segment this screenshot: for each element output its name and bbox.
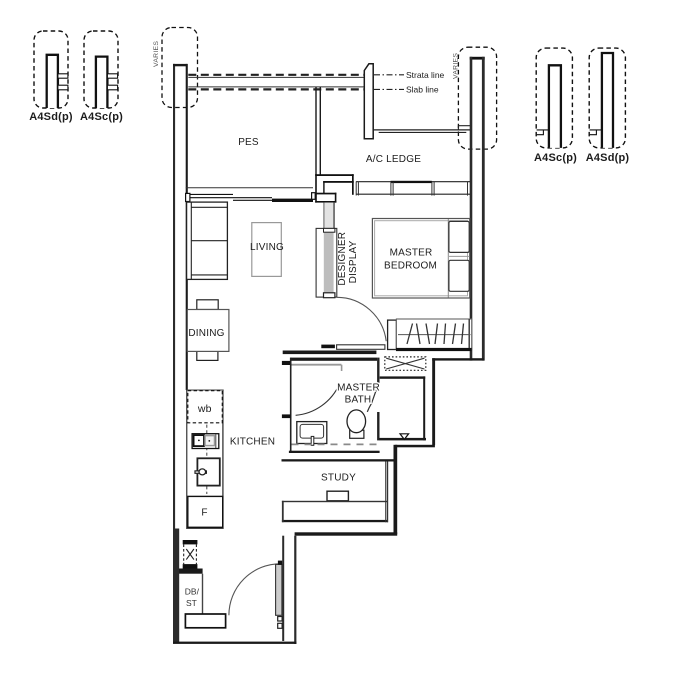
svg-text:PES: PES bbox=[238, 137, 259, 148]
svg-text:STUDY: STUDY bbox=[321, 472, 356, 483]
svg-text:A4Sd(p): A4Sd(p) bbox=[586, 152, 630, 164]
svg-text:Strata line: Strata line bbox=[406, 70, 445, 80]
svg-text:MASTER: MASTER bbox=[390, 248, 433, 259]
svg-text:A4Sc(p): A4Sc(p) bbox=[534, 152, 577, 164]
svg-text:wb: wb bbox=[197, 403, 212, 415]
svg-text:DESIGNER: DESIGNER bbox=[337, 232, 348, 286]
svg-text:DISPLAY: DISPLAY bbox=[348, 240, 359, 283]
svg-text:BEDROOM: BEDROOM bbox=[384, 260, 437, 271]
svg-text:DINING: DINING bbox=[188, 328, 224, 339]
svg-text:A4Sd(p): A4Sd(p) bbox=[29, 111, 73, 123]
svg-text:LIVING: LIVING bbox=[250, 242, 284, 253]
svg-text:F: F bbox=[201, 508, 207, 519]
svg-text:BATH: BATH bbox=[345, 395, 372, 406]
svg-text:DB/: DB/ bbox=[185, 586, 200, 596]
svg-text:A4Sc(p): A4Sc(p) bbox=[80, 111, 123, 123]
svg-text:ST: ST bbox=[186, 598, 197, 608]
svg-text:A/C LEDGE: A/C LEDGE bbox=[366, 154, 421, 165]
svg-text:KITCHEN: KITCHEN bbox=[230, 436, 275, 447]
svg-text:Slab line: Slab line bbox=[406, 85, 439, 95]
svg-text:VARIES: VARIES bbox=[153, 41, 160, 67]
svg-text:MASTER: MASTER bbox=[337, 383, 380, 394]
